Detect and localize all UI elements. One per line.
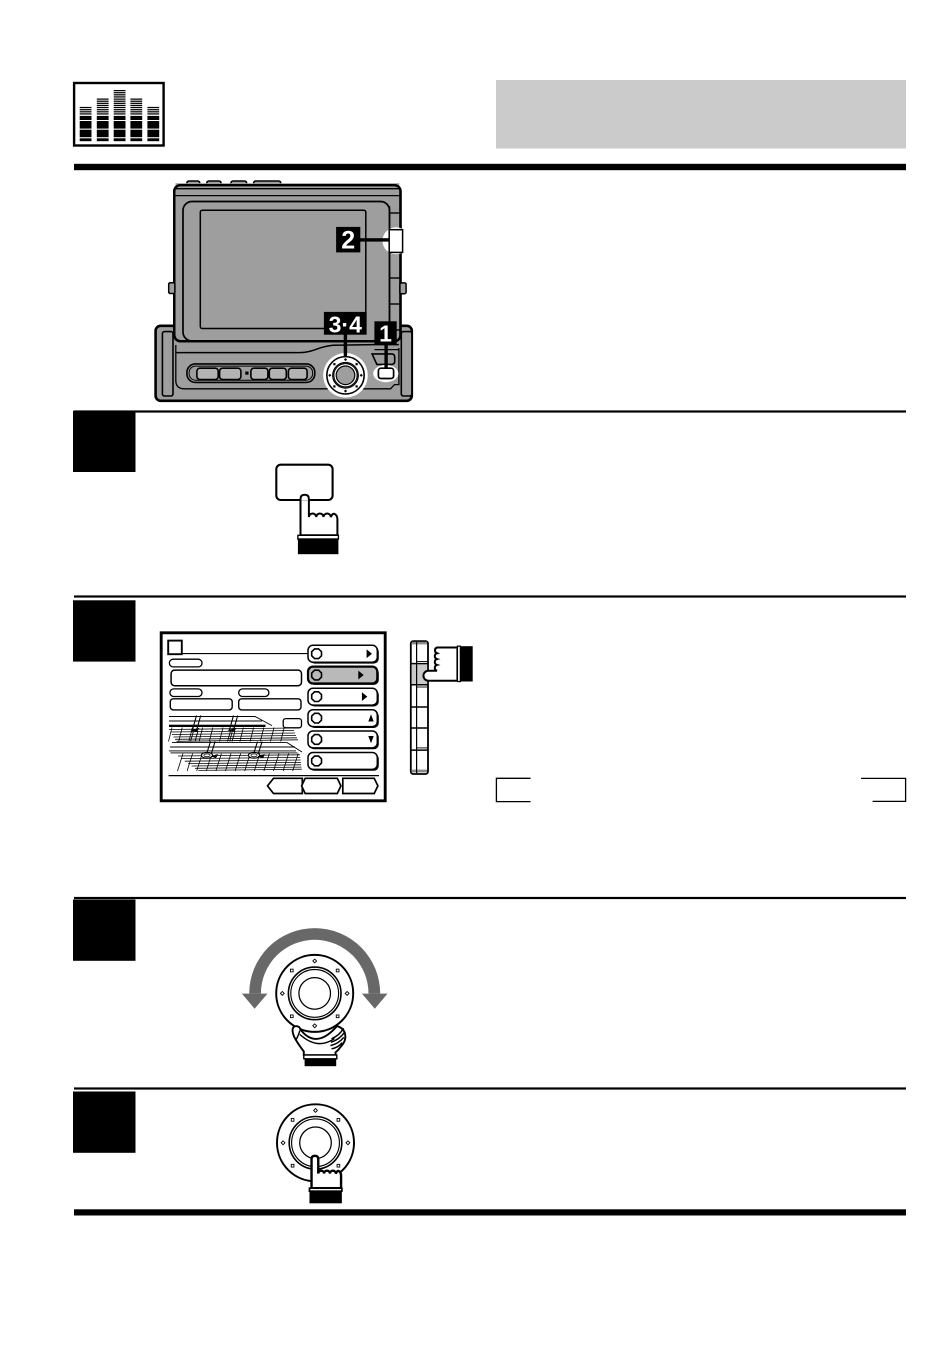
svg-text:3·4: 3·4 <box>329 311 362 337</box>
svg-text:1: 1 <box>379 321 392 347</box>
svg-text:2: 2 <box>341 227 355 255</box>
